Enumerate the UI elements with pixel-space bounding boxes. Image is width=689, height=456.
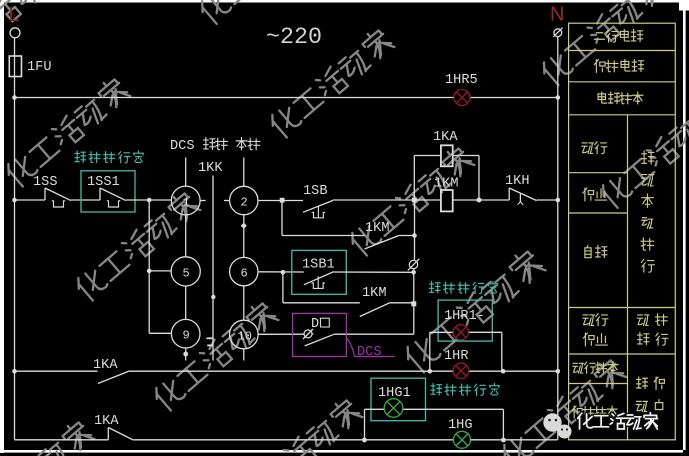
svg-text:DCS: DCS xyxy=(170,139,194,154)
svg-text:1FU: 1FU xyxy=(27,60,51,75)
svg-text:1HR1-: 1HR1- xyxy=(444,309,485,324)
svg-text:1KK: 1KK xyxy=(198,161,223,176)
svg-text:1KA: 1KA xyxy=(433,130,458,145)
svg-text:1SS1: 1SS1 xyxy=(87,175,120,190)
svg-text:9: 9 xyxy=(183,329,190,343)
svg-text:1KA: 1KA xyxy=(94,414,119,429)
svg-text:1KM: 1KM xyxy=(362,286,386,301)
svg-text:~220: ~220 xyxy=(266,24,322,50)
svg-text:2: 2 xyxy=(241,196,248,210)
svg-text:N: N xyxy=(550,4,564,26)
svg-text:10: 10 xyxy=(238,329,252,343)
svg-text:1KH: 1KH xyxy=(505,174,529,189)
svg-text:DCS: DCS xyxy=(357,345,381,360)
svg-text:1: 1 xyxy=(183,196,190,210)
svg-text:1SB: 1SB xyxy=(303,184,327,199)
svg-text:5: 5 xyxy=(183,267,190,281)
svg-text:6: 6 xyxy=(241,267,248,281)
svg-text:1HG: 1HG xyxy=(448,418,472,433)
svg-text:1SS: 1SS xyxy=(33,175,57,190)
svg-text:L: L xyxy=(9,4,20,26)
svg-text:1KM: 1KM xyxy=(365,221,389,236)
svg-text:1HR5: 1HR5 xyxy=(445,73,478,88)
svg-text:1HR: 1HR xyxy=(444,349,468,364)
svg-text:1SB1: 1SB1 xyxy=(302,258,335,273)
